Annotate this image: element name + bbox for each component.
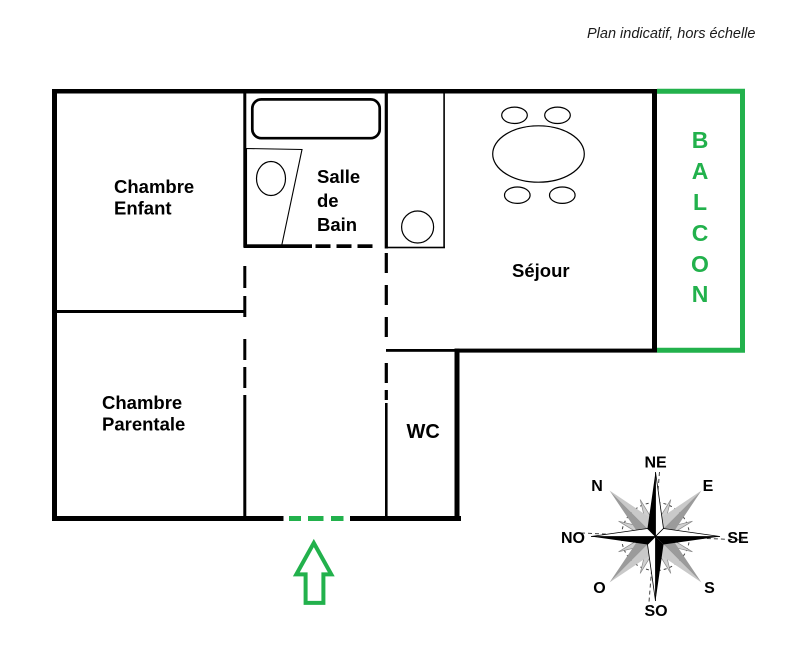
svg-text:O: O — [593, 580, 605, 597]
svg-text:Plan indicatif, hors échelle: Plan indicatif, hors échelle — [587, 26, 755, 42]
svg-text:S: S — [704, 580, 715, 597]
svg-text:NO: NO — [561, 530, 585, 547]
svg-text:Salle: Salle — [317, 166, 360, 187]
svg-text:Parentale: Parentale — [102, 414, 185, 435]
svg-text:SO: SO — [644, 603, 667, 620]
svg-text:Chambre: Chambre — [102, 392, 182, 413]
svg-text:NE: NE — [644, 455, 667, 472]
svg-text:N: N — [692, 281, 709, 307]
svg-text:de: de — [317, 190, 339, 211]
svg-text:L: L — [693, 189, 707, 215]
svg-text:C: C — [692, 220, 709, 246]
svg-text:WC: WC — [407, 421, 440, 443]
svg-text:O: O — [691, 251, 709, 277]
svg-text:Bain: Bain — [317, 214, 357, 235]
svg-text:A: A — [692, 158, 709, 184]
svg-text:N: N — [591, 478, 603, 495]
svg-text:Chambre: Chambre — [114, 176, 194, 197]
svg-text:Séjour: Séjour — [512, 260, 570, 281]
svg-text:B: B — [692, 127, 709, 153]
svg-text:SE: SE — [727, 530, 749, 547]
svg-text:Enfant: Enfant — [114, 198, 172, 219]
svg-text:E: E — [703, 478, 714, 495]
